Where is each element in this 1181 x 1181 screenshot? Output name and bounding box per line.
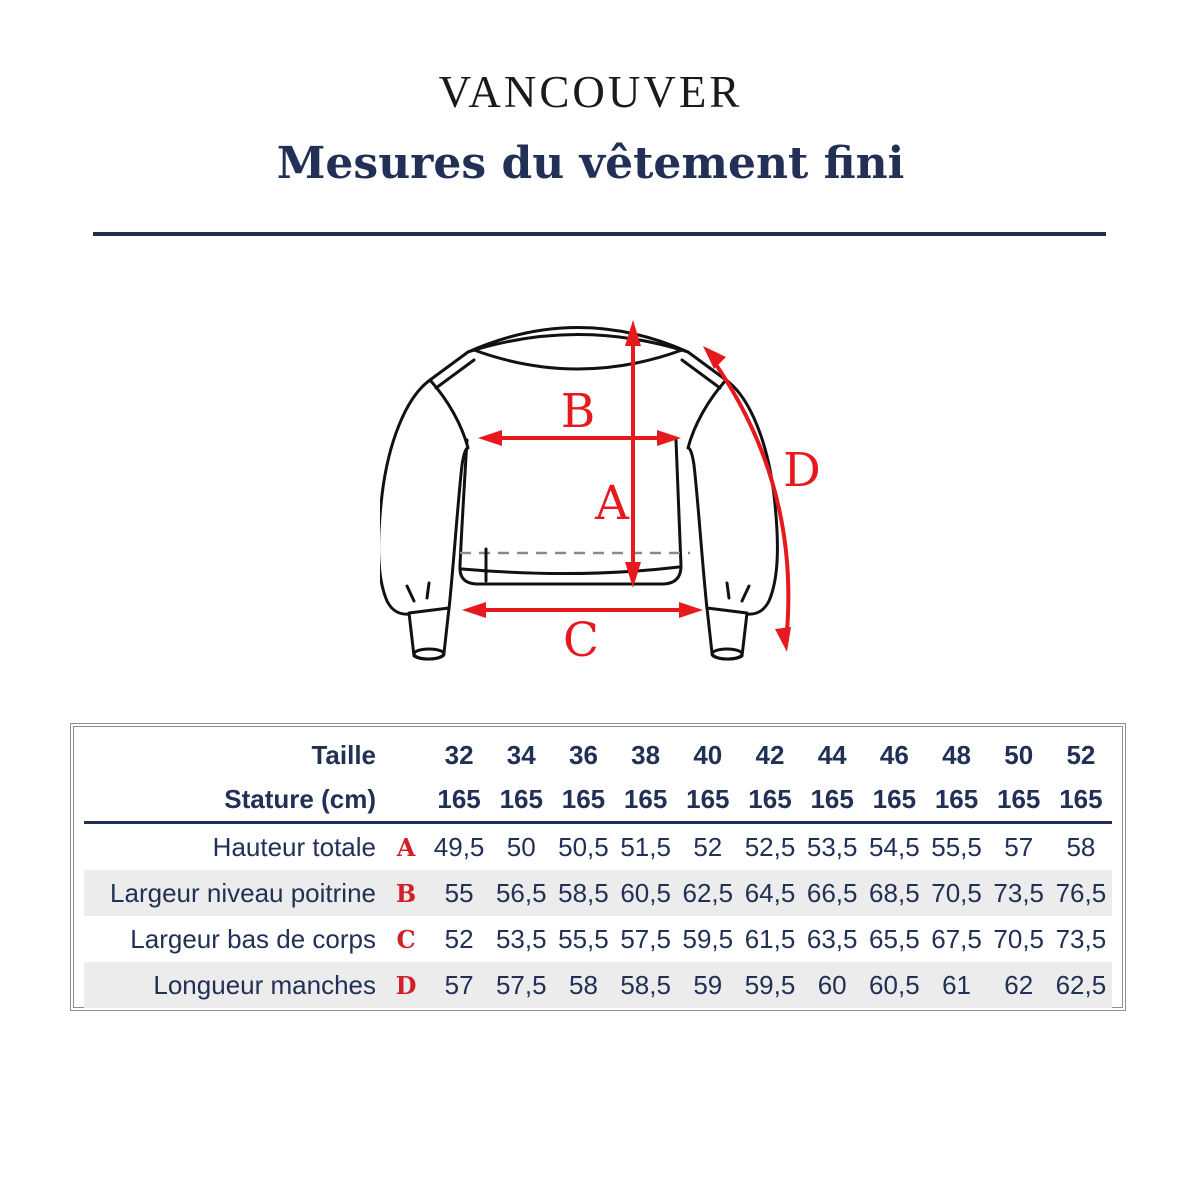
diagram-label-C: C — [563, 613, 599, 668]
table-row: Hauteur totaleA49,55050,551,55252,553,55… — [84, 824, 1112, 870]
page-title: VANCOUVER — [0, 66, 1181, 118]
table-cell: 65,5 — [863, 924, 925, 955]
table-cell: 62 — [988, 970, 1050, 1001]
diagram-label-B: B — [561, 384, 596, 439]
table-cell: 60,5 — [615, 878, 677, 909]
table-cell: 57,5 — [615, 924, 677, 955]
table-cell: 68,5 — [863, 878, 925, 909]
table-row: Longueur manchesD5757,55858,55959,56060,… — [84, 962, 1112, 1008]
table-cell: 57 — [428, 970, 490, 1001]
row-label: Largeur niveau poitrine — [84, 878, 384, 909]
column-header: 165 — [988, 784, 1050, 815]
right-sleeve — [688, 380, 777, 659]
column-header: 34 — [490, 740, 552, 771]
table-cell: 70,5 — [988, 924, 1050, 955]
column-header: 38 — [615, 740, 677, 771]
column-header: 165 — [925, 784, 987, 815]
row-label: Largeur bas de corps — [84, 924, 384, 955]
table-cell: 59 — [677, 970, 739, 1001]
table-cell: 53,5 — [490, 924, 552, 955]
column-header: 165 — [1050, 784, 1112, 815]
table-cell: 52 — [677, 832, 739, 863]
column-header: 165 — [428, 784, 490, 815]
column-header: 36 — [552, 740, 614, 771]
table-cell: 57 — [988, 832, 1050, 863]
table-cell: 55,5 — [552, 924, 614, 955]
table-cell: 55 — [428, 878, 490, 909]
column-header: 52 — [1050, 740, 1112, 771]
table-cell: 51,5 — [615, 832, 677, 863]
table-cell: 62,5 — [677, 878, 739, 909]
column-header: 165 — [615, 784, 677, 815]
left-sleeve — [380, 380, 468, 659]
table-cell: 58,5 — [615, 970, 677, 1001]
header-label: Stature (cm) — [84, 784, 384, 815]
table-cell: 61,5 — [739, 924, 801, 955]
measurements-table: Taille3234363840424446485052Stature (cm)… — [70, 723, 1126, 1011]
table-header-row: Taille3234363840424446485052 — [84, 733, 1112, 777]
column-header: 165 — [801, 784, 863, 815]
table-cell: 61 — [925, 970, 987, 1001]
row-letter: A — [384, 833, 428, 862]
row-label: Longueur manches — [84, 970, 384, 1001]
table-cell: 58 — [552, 970, 614, 1001]
table-cell: 60 — [801, 970, 863, 1001]
table-cell: 55,5 — [925, 832, 987, 863]
table-cell: 73,5 — [988, 878, 1050, 909]
row-letter: D — [384, 971, 428, 1000]
table-cell: 63,5 — [801, 924, 863, 955]
header-label: Taille — [84, 740, 384, 771]
column-header: 165 — [739, 784, 801, 815]
table-cell: 49,5 — [428, 832, 490, 863]
table-cell: 54,5 — [863, 832, 925, 863]
table-cell: 76,5 — [1050, 878, 1112, 909]
row-letter: C — [384, 925, 428, 954]
table-cell: 62,5 — [1050, 970, 1112, 1001]
table-cell: 57,5 — [490, 970, 552, 1001]
table-cell: 53,5 — [801, 832, 863, 863]
column-header: 40 — [677, 740, 739, 771]
table-cell: 52,5 — [739, 832, 801, 863]
table-cell: 66,5 — [801, 878, 863, 909]
column-header: 165 — [552, 784, 614, 815]
diagram-label-A: A — [594, 476, 630, 531]
table-cell: 59,5 — [677, 924, 739, 955]
row-label: Hauteur totale — [84, 832, 384, 863]
column-header: 165 — [863, 784, 925, 815]
table-cell: 59,5 — [739, 970, 801, 1001]
table-cell: 58,5 — [552, 878, 614, 909]
collar — [468, 328, 688, 370]
column-header: 50 — [988, 740, 1050, 771]
table-cell: 56,5 — [490, 878, 552, 909]
garment-measurement-diagram: B A C D — [380, 285, 825, 690]
measure-arrow-A — [625, 320, 641, 588]
table-cell: 73,5 — [1050, 924, 1112, 955]
column-header: 165 — [490, 784, 552, 815]
table-cell: 50,5 — [552, 832, 614, 863]
table-cell: 60,5 — [863, 970, 925, 1001]
title-divider — [93, 232, 1106, 236]
table-cell: 70,5 — [925, 878, 987, 909]
table-cell: 64,5 — [739, 878, 801, 909]
sweater-body — [460, 440, 690, 584]
size-chart-page: { "title": "VANCOUVER", "subtitle": "Mes… — [0, 0, 1181, 1181]
column-header: 32 — [428, 740, 490, 771]
column-header: 44 — [801, 740, 863, 771]
column-header: 165 — [677, 784, 739, 815]
table-cell: 67,5 — [925, 924, 987, 955]
table-row: Largeur bas de corpsC5253,555,557,559,56… — [84, 916, 1112, 962]
column-header: 48 — [925, 740, 987, 771]
column-header: 42 — [739, 740, 801, 771]
table-cell: 52 — [428, 924, 490, 955]
diagram-label-D: D — [783, 443, 821, 498]
row-letter: B — [384, 879, 428, 908]
table-row: Largeur niveau poitrineB5556,558,560,562… — [84, 870, 1112, 916]
table-cell: 58 — [1050, 832, 1112, 863]
table-cell: 50 — [490, 832, 552, 863]
page-subtitle: Mesures du vêtement fini — [0, 138, 1181, 189]
column-header: 46 — [863, 740, 925, 771]
table-header-row: Stature (cm)1651651651651651651651651651… — [84, 777, 1112, 821]
